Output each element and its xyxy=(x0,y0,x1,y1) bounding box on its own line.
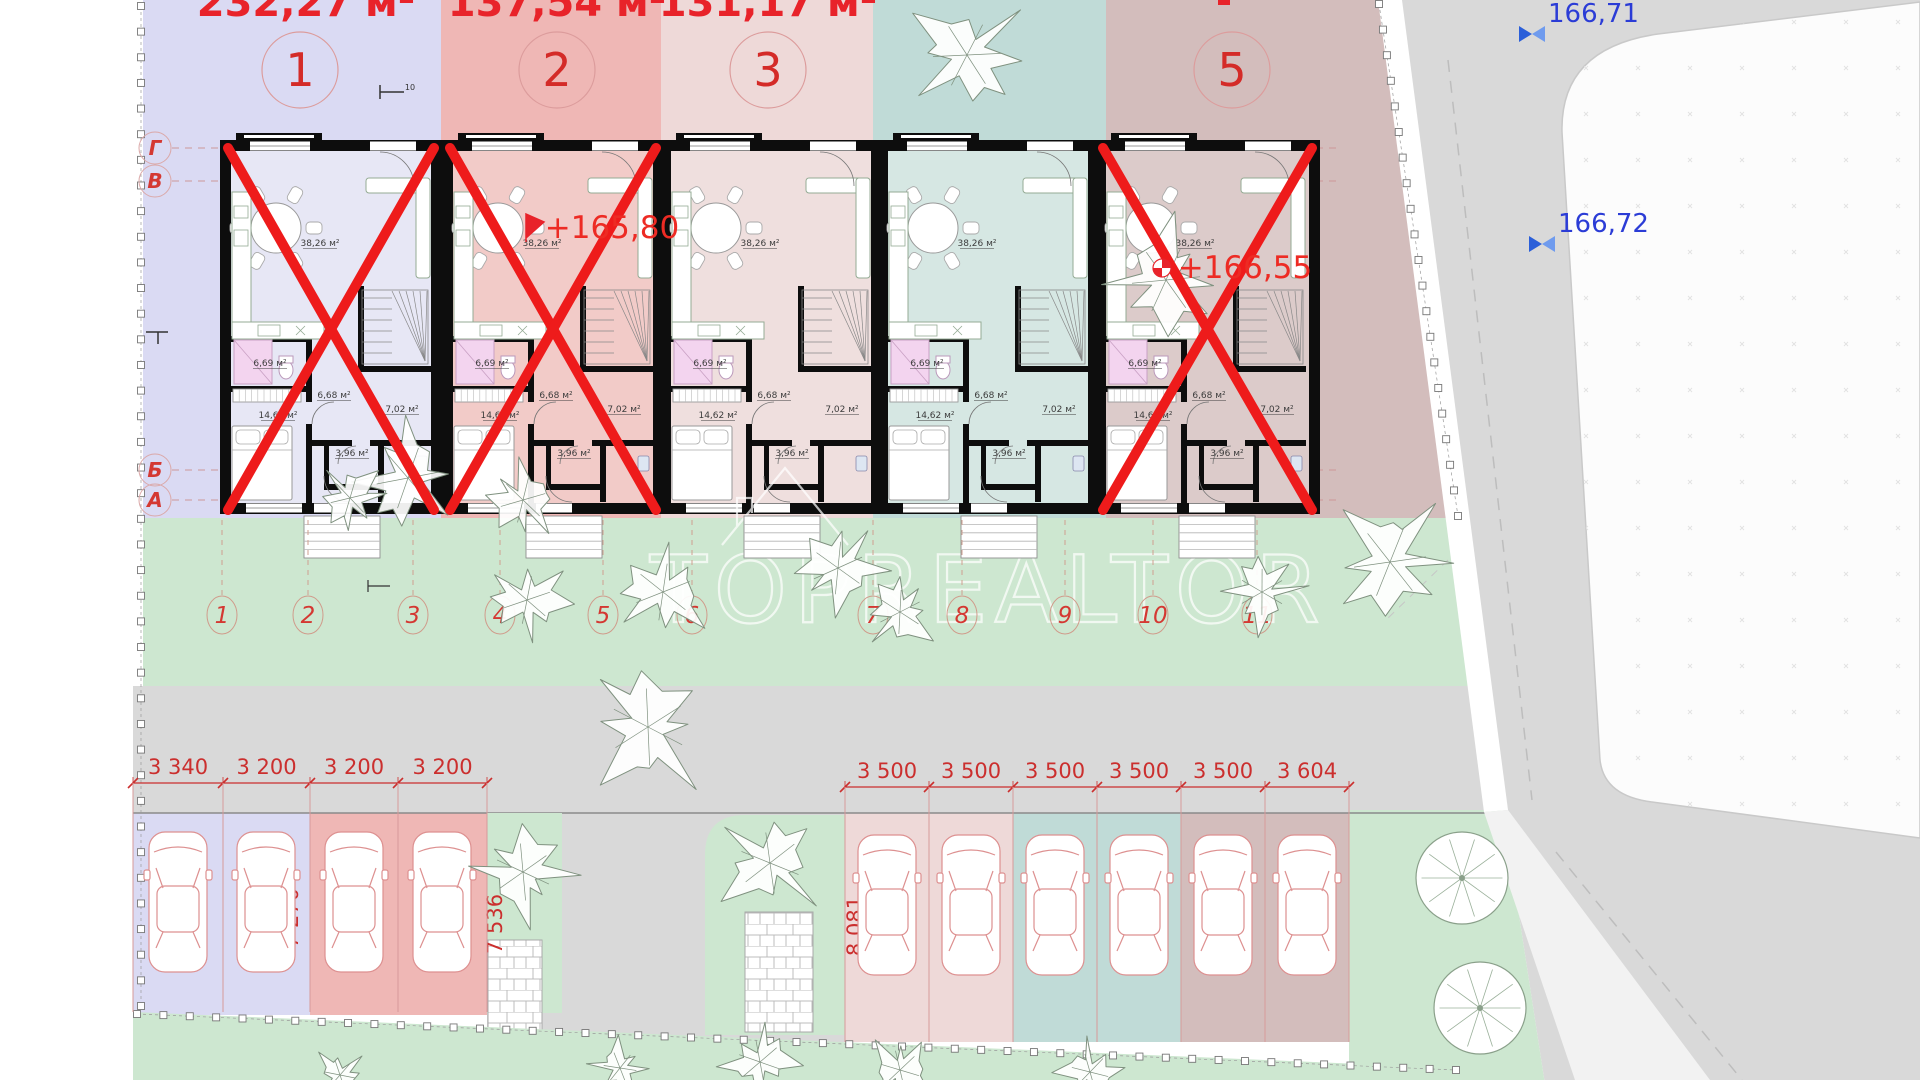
entry-steps xyxy=(304,516,380,558)
fence-post xyxy=(1004,1047,1011,1054)
car xyxy=(408,832,476,972)
car xyxy=(1273,835,1341,975)
fence-post xyxy=(899,1043,906,1050)
room-area-label: 3,96 м² xyxy=(775,449,809,459)
fence-post xyxy=(138,54,145,61)
wardrobe xyxy=(890,389,958,402)
fence-post xyxy=(292,1017,299,1024)
fence-post xyxy=(1431,359,1438,366)
room-area-label: 6,69 м² xyxy=(693,359,727,369)
fence-post xyxy=(265,1016,272,1023)
room-area-label: 6,69 м² xyxy=(253,359,287,369)
car xyxy=(320,832,388,972)
fence-post xyxy=(1268,1059,1275,1066)
benchmark-label-166-71: 166,71 xyxy=(1548,0,1639,29)
fence-post xyxy=(345,1019,352,1026)
room-area-label: 3,96 м² xyxy=(1210,449,1244,459)
fence-post xyxy=(239,1015,246,1022)
fence-post xyxy=(1447,461,1454,468)
fence-post xyxy=(138,977,145,984)
fence-post xyxy=(1321,1061,1328,1068)
fence-post xyxy=(1030,1049,1037,1056)
fence-post xyxy=(925,1044,932,1051)
fence-post xyxy=(138,644,145,651)
fence-post xyxy=(1347,1062,1354,1069)
fence-post xyxy=(793,1039,800,1046)
fence-post xyxy=(138,285,145,292)
car xyxy=(1021,835,1089,975)
fence-post xyxy=(450,1024,457,1031)
dimension-label: 3 500 xyxy=(1193,759,1253,783)
fence-post xyxy=(138,695,145,702)
fence-post xyxy=(138,746,145,753)
fence-post xyxy=(397,1022,404,1029)
fence-post xyxy=(1451,487,1458,494)
room-area-label: 7,02 м² xyxy=(385,405,419,415)
round-tree xyxy=(1434,962,1526,1054)
unit-area-label: 131,17 м² xyxy=(659,0,878,26)
fence-post xyxy=(1455,513,1462,520)
fence-post xyxy=(138,361,145,368)
fence-post xyxy=(1241,1058,1248,1065)
room-area-label: 7,02 м² xyxy=(1260,405,1294,415)
site-plan-drawing: 38,26 м²6,69 м²6,68 м²7,02 м²14,62 м²3,9… xyxy=(0,0,1920,1080)
fence-post xyxy=(1399,154,1406,161)
fence-post xyxy=(1189,1055,1196,1062)
fence-post xyxy=(138,951,145,958)
entry-steps xyxy=(961,516,1037,558)
fence-post xyxy=(1435,385,1442,392)
lot-number: 1 xyxy=(215,603,230,629)
grid-axis-label: А xyxy=(145,488,162,512)
scale-mark-label: 10 xyxy=(405,83,415,92)
fence-post xyxy=(160,1012,167,1019)
room-area-label: 3,96 м² xyxy=(335,449,369,459)
car xyxy=(1105,835,1173,975)
fence-post xyxy=(1415,257,1422,264)
room-area-label: 38,26 м² xyxy=(740,239,779,249)
room-area-label: 14,62 м² xyxy=(915,411,954,421)
elevation-benchmark-icon xyxy=(1153,259,1171,277)
fence-post xyxy=(1423,308,1430,315)
fence-post xyxy=(1376,1,1383,8)
fence-post xyxy=(371,1021,378,1028)
fence-post xyxy=(1373,1063,1380,1070)
dimension-label: 3 604 xyxy=(1277,759,1337,783)
unit-area-label: 232,27 м² xyxy=(197,0,416,26)
fence-post xyxy=(138,669,145,676)
room-area-label: 7,02 м² xyxy=(607,405,641,415)
room-area-label: 6,69 м² xyxy=(475,359,509,369)
car xyxy=(853,835,921,975)
fence-post xyxy=(740,1036,747,1043)
fence-post xyxy=(951,1045,958,1052)
fence-post xyxy=(424,1023,431,1030)
dimension-label: 3 500 xyxy=(1109,759,1169,783)
entry-steps xyxy=(744,516,820,558)
fence-post xyxy=(503,1026,510,1033)
dining-table xyxy=(691,203,741,253)
room-area-label: 3,96 м² xyxy=(992,449,1026,459)
fence-post xyxy=(186,1013,193,1020)
townhouse-unit: 38,26 м²6,69 м²6,68 м²7,02 м²14,62 м²3,9… xyxy=(877,133,1099,514)
fence-post xyxy=(1391,103,1398,110)
fence-post xyxy=(138,823,145,830)
fence-post xyxy=(138,720,145,727)
dimension-label: 3 500 xyxy=(1025,759,1085,783)
dimension-label: 3 200 xyxy=(236,755,296,779)
fence-post xyxy=(1453,1067,1460,1074)
entry-steps xyxy=(1179,516,1255,558)
fence-post xyxy=(1426,1065,1433,1072)
unit-number: 1 xyxy=(285,43,314,97)
fence-post xyxy=(138,28,145,35)
dimension-label: 3 500 xyxy=(941,759,1001,783)
townhouse-unit: 38,26 м²6,69 м²6,68 м²7,02 м²14,62 м²3,9… xyxy=(660,133,882,514)
fence-post xyxy=(1443,436,1450,443)
fence-post xyxy=(1439,410,1446,417)
fence-post xyxy=(138,797,145,804)
dimension-label: 3 500 xyxy=(857,759,917,783)
fence-post xyxy=(138,156,145,163)
fence-post xyxy=(1383,52,1390,59)
room-area-label: 38,26 м² xyxy=(1175,239,1214,249)
fence-post xyxy=(714,1035,721,1042)
room-area-label: 38,26 м² xyxy=(300,239,339,249)
fence-post xyxy=(1395,129,1402,136)
car xyxy=(1189,835,1257,975)
fence-post xyxy=(476,1025,483,1032)
room-area-label: 6,68 м² xyxy=(757,391,791,401)
lot-number: 2 xyxy=(301,603,316,629)
lot-number: 9 xyxy=(1058,603,1073,629)
fence-post xyxy=(1427,333,1434,340)
fence-post xyxy=(687,1034,694,1041)
fence-post xyxy=(138,310,145,317)
fence-post xyxy=(318,1018,325,1025)
fence-post xyxy=(1294,1060,1301,1067)
fence-post xyxy=(138,541,145,548)
room-area-label: 6,68 м² xyxy=(539,391,573,401)
fence-post xyxy=(138,567,145,574)
unit-area-label-fragment xyxy=(1218,0,1230,5)
fence-post xyxy=(1136,1053,1143,1060)
fence-post xyxy=(1400,1064,1407,1071)
fence-post xyxy=(138,772,145,779)
car xyxy=(937,835,1005,975)
fence-post xyxy=(138,208,145,215)
room-area-label: 3,96 м² xyxy=(557,449,591,459)
fence-post xyxy=(1215,1056,1222,1063)
fence-post xyxy=(138,233,145,240)
elevation-label-unit5: +166,55 xyxy=(1178,250,1312,286)
fence-post xyxy=(1379,26,1386,33)
fence-post xyxy=(529,1027,536,1034)
unit-number: 5 xyxy=(1217,43,1246,97)
site-plan-page: 38,26 м²6,69 м²6,68 м²7,02 м²14,62 м²3,9… xyxy=(0,0,1920,1080)
car xyxy=(144,832,212,972)
fence-post xyxy=(1387,77,1394,84)
room-area-label: 6,68 м² xyxy=(317,391,351,401)
fence-post xyxy=(138,618,145,625)
fence-post xyxy=(138,336,145,343)
room-area-label: 6,68 м² xyxy=(974,391,1008,401)
fence-post xyxy=(582,1030,589,1037)
dimension-label: 3 340 xyxy=(148,755,208,779)
road xyxy=(133,686,1503,813)
elevation-label-unit2: +165,80 xyxy=(545,210,679,246)
room-area-label: 6,69 м² xyxy=(1128,359,1162,369)
wardrobe xyxy=(673,389,741,402)
fence-post xyxy=(635,1032,642,1039)
room-area-label: 7,02 м² xyxy=(1042,405,1076,415)
fence-post xyxy=(138,105,145,112)
fence-post xyxy=(1162,1054,1169,1061)
fence-post xyxy=(1411,231,1418,238)
lot-number: 5 xyxy=(596,603,611,629)
fence-post xyxy=(1419,282,1426,289)
benchmark-label-166-72: 166,72 xyxy=(1558,209,1649,239)
fence-post xyxy=(556,1028,563,1035)
fence-post xyxy=(819,1040,826,1047)
fence-post xyxy=(213,1014,220,1021)
grid-axis-label: Б xyxy=(147,458,162,482)
fence-post xyxy=(138,900,145,907)
room-area-label: 6,69 м² xyxy=(910,359,944,369)
unit-number: 3 xyxy=(753,43,782,97)
dimension-label: 3 200 xyxy=(324,755,384,779)
fence-post xyxy=(138,387,145,394)
paved-path xyxy=(745,912,813,1032)
fence-post xyxy=(138,849,145,856)
unit-area-label: 137,54 м² xyxy=(448,0,667,26)
room-area-label: 6,68 м² xyxy=(1192,391,1226,401)
fence-post xyxy=(138,259,145,266)
fence-post xyxy=(138,438,145,445)
fence-post xyxy=(1110,1052,1117,1059)
lot-number: 10 xyxy=(1138,603,1167,629)
room-area-label: 14,62 м² xyxy=(698,411,737,421)
tree xyxy=(721,822,816,906)
lot-number: 3 xyxy=(406,603,421,629)
car xyxy=(232,832,300,972)
fence-post xyxy=(138,1003,145,1010)
fence-post xyxy=(1057,1050,1064,1057)
fence-post xyxy=(138,3,145,10)
fence-post xyxy=(138,413,145,420)
room-area-label: 38,26 м² xyxy=(957,239,996,249)
fence-post xyxy=(138,926,145,933)
fence-post xyxy=(138,515,145,522)
fence-post xyxy=(138,79,145,86)
fence-post xyxy=(608,1031,615,1038)
fence-post xyxy=(1403,180,1410,187)
grid-axis-label: В xyxy=(147,169,162,193)
unit-number: 2 xyxy=(542,43,571,97)
fence-post xyxy=(134,1011,141,1018)
fence-post xyxy=(1407,205,1414,212)
grid-axis-label: Г xyxy=(149,136,163,160)
round-tree xyxy=(1416,832,1508,924)
dining-table xyxy=(908,203,958,253)
entry-steps xyxy=(526,516,602,558)
fence-post xyxy=(978,1046,985,1053)
buildings-layer: 38,26 м²6,69 м²6,68 м²7,02 м²14,62 м²3,9… xyxy=(220,133,1320,514)
fence-post xyxy=(138,592,145,599)
fence-post xyxy=(661,1033,668,1040)
room-area-label: 7,02 м² xyxy=(825,405,859,415)
dimension-label: 3 200 xyxy=(412,755,472,779)
fence-post xyxy=(846,1041,853,1048)
lot-number: 8 xyxy=(955,603,970,629)
